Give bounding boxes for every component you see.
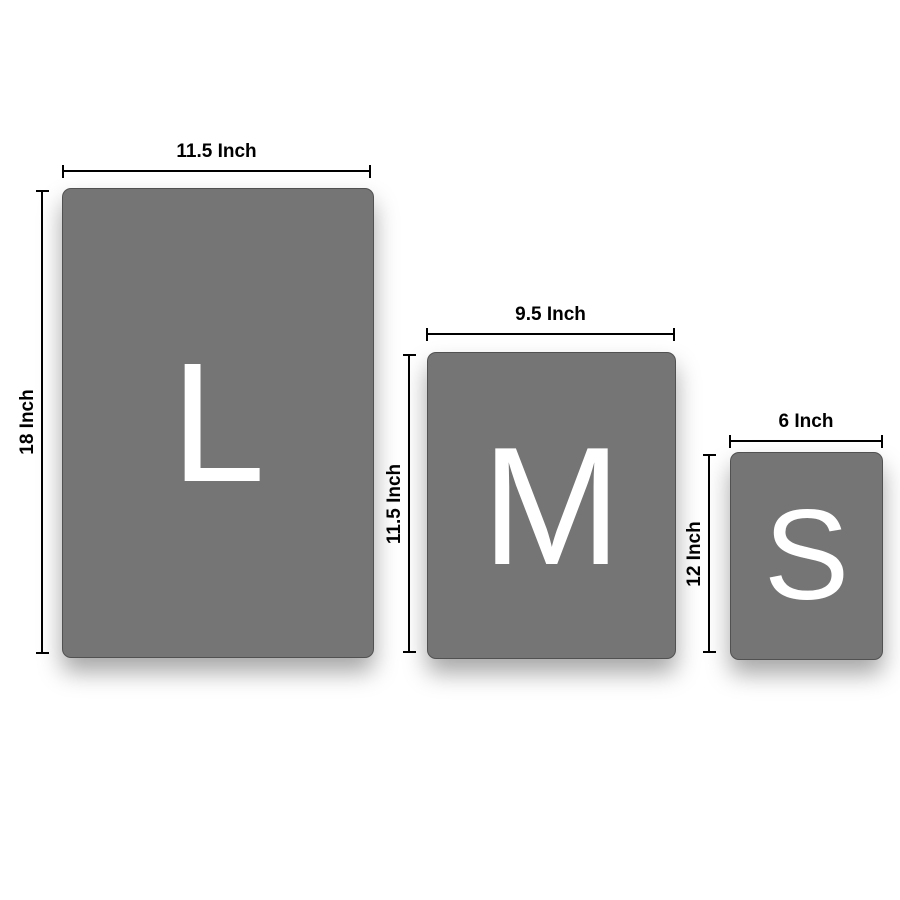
width-label-small: 6 Inch (779, 411, 834, 433)
dimension-tick-icon (369, 165, 371, 178)
size-panel-large: L (62, 188, 374, 658)
height-dimension-line-medium: 11.5 Inch (408, 354, 410, 653)
size-panel-medium: M (427, 352, 676, 659)
size-letter-small: S (764, 492, 849, 620)
width-label-medium: 9.5 Inch (515, 304, 586, 326)
size-chart-diagram: 11.5 Inch 18 Inch L 9.5 Inch 11.5 Inch M (0, 0, 900, 900)
width-dimension-line-large: 11.5 Inch (62, 170, 371, 172)
dimension-tick-icon (36, 652, 49, 654)
dimension-tick-icon (62, 165, 64, 178)
dimension-tick-icon (881, 435, 883, 448)
width-dimension-line-medium: 9.5 Inch (426, 333, 675, 335)
height-dimension-line-small: 12 Inch (708, 454, 710, 653)
dimension-tick-icon (673, 328, 675, 341)
width-label-large: 11.5 Inch (176, 141, 256, 163)
dimension-tick-icon (703, 454, 716, 456)
height-label-large: 18 Inch (17, 389, 39, 454)
size-letter-medium: M (482, 422, 622, 590)
dimension-tick-icon (729, 435, 731, 448)
dimension-tick-icon (403, 354, 416, 356)
size-letter-large: L (171, 338, 266, 508)
height-label-small: 12 Inch (684, 521, 706, 586)
size-panel-small: S (730, 452, 883, 660)
height-dimension-line-large: 18 Inch (41, 190, 43, 654)
width-dimension-line-small: 6 Inch (729, 440, 883, 442)
dimension-tick-icon (703, 651, 716, 653)
dimension-tick-icon (403, 651, 416, 653)
dimension-tick-icon (426, 328, 428, 341)
dimension-tick-icon (36, 190, 49, 192)
height-label-medium: 11.5 Inch (384, 463, 406, 543)
